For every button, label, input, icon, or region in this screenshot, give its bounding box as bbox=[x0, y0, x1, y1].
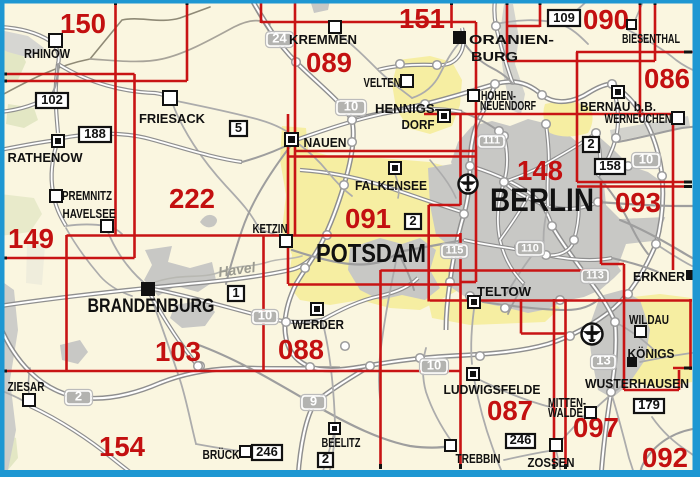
svg-text:WERNEUCHEN: WERNEUCHEN bbox=[605, 111, 672, 126]
svg-text:ERKNER: ERKNER bbox=[633, 269, 686, 284]
svg-text:149: 149 bbox=[8, 223, 54, 254]
svg-text:246: 246 bbox=[510, 432, 532, 447]
svg-text:10: 10 bbox=[639, 152, 653, 167]
svg-text:HENNIGS-: HENNIGS- bbox=[375, 101, 439, 116]
svg-text:088: 088 bbox=[278, 334, 324, 365]
svg-text:BRANDENBURG: BRANDENBURG bbox=[88, 296, 215, 317]
svg-text:154: 154 bbox=[99, 431, 145, 462]
svg-text:2: 2 bbox=[587, 136, 594, 151]
svg-text:150: 150 bbox=[60, 8, 106, 39]
svg-text:110: 110 bbox=[521, 243, 539, 255]
svg-text:9: 9 bbox=[310, 394, 317, 409]
svg-text:BRÜCK: BRÜCK bbox=[203, 447, 240, 462]
svg-text:WERDER: WERDER bbox=[292, 317, 345, 332]
svg-text:086: 086 bbox=[644, 63, 690, 94]
svg-text:246: 246 bbox=[256, 444, 278, 459]
svg-text:092: 092 bbox=[642, 442, 688, 473]
svg-text:102: 102 bbox=[41, 92, 63, 107]
svg-text:WALDE: WALDE bbox=[548, 405, 583, 420]
svg-text:LUDWIGSFELDE: LUDWIGSFELDE bbox=[444, 382, 541, 397]
svg-text:HAVELSEE: HAVELSEE bbox=[63, 206, 116, 221]
svg-text:DORF: DORF bbox=[402, 117, 435, 132]
svg-text:179: 179 bbox=[638, 397, 660, 412]
svg-text:111: 111 bbox=[483, 135, 500, 147]
svg-text:TELTOW: TELTOW bbox=[477, 284, 532, 299]
svg-text:087: 087 bbox=[487, 395, 533, 426]
svg-text:103: 103 bbox=[155, 336, 201, 367]
svg-text:BERLIN: BERLIN bbox=[490, 182, 594, 218]
svg-text:FRIESACK: FRIESACK bbox=[139, 111, 206, 126]
svg-text:ZIESAR: ZIESAR bbox=[8, 379, 45, 394]
svg-text:091: 091 bbox=[345, 203, 391, 234]
svg-text:10: 10 bbox=[427, 358, 441, 373]
svg-text:PREMNITZ: PREMNITZ bbox=[62, 188, 112, 203]
svg-text:ZOSSEN: ZOSSEN bbox=[528, 455, 575, 470]
svg-text:RHINOW: RHINOW bbox=[24, 46, 71, 61]
svg-text:093: 093 bbox=[615, 187, 661, 218]
svg-text:FALKENSEE: FALKENSEE bbox=[355, 178, 427, 193]
svg-text:10: 10 bbox=[258, 308, 272, 323]
svg-text:BIESENTHAL: BIESENTHAL bbox=[622, 31, 680, 46]
svg-text:222: 222 bbox=[169, 183, 215, 214]
svg-text:2: 2 bbox=[409, 213, 416, 228]
svg-text:113: 113 bbox=[586, 270, 604, 282]
svg-text:NAUEN: NAUEN bbox=[304, 135, 347, 150]
svg-text:115: 115 bbox=[446, 245, 464, 257]
svg-text:2: 2 bbox=[75, 389, 82, 404]
svg-text:VELTEN: VELTEN bbox=[364, 75, 401, 90]
svg-text:10: 10 bbox=[344, 99, 358, 114]
svg-text:KETZIN: KETZIN bbox=[253, 221, 288, 236]
svg-text:089: 089 bbox=[306, 47, 352, 78]
svg-text:13: 13 bbox=[596, 353, 610, 368]
svg-text:TREBBIN: TREBBIN bbox=[456, 451, 501, 466]
svg-text:5: 5 bbox=[235, 120, 242, 135]
svg-text:BURG: BURG bbox=[471, 49, 518, 64]
svg-text:24: 24 bbox=[272, 31, 287, 46]
svg-text:1: 1 bbox=[232, 285, 239, 300]
svg-text:109: 109 bbox=[553, 10, 575, 25]
svg-text:ORANIEN-: ORANIEN- bbox=[469, 32, 554, 47]
svg-text:BEELITZ: BEELITZ bbox=[322, 435, 361, 450]
svg-text:POTSDAM: POTSDAM bbox=[316, 238, 426, 268]
svg-text:2: 2 bbox=[322, 451, 329, 466]
svg-text:151: 151 bbox=[399, 3, 445, 34]
svg-text:RATHENOW: RATHENOW bbox=[8, 150, 84, 165]
svg-text:WUSTERHAUSEN: WUSTERHAUSEN bbox=[585, 376, 689, 391]
svg-text:KREMMEN: KREMMEN bbox=[289, 32, 357, 47]
svg-text:KÖNIGS: KÖNIGS bbox=[628, 346, 675, 361]
svg-text:WILDAU: WILDAU bbox=[629, 312, 669, 327]
svg-text:188: 188 bbox=[84, 126, 106, 141]
svg-text:158: 158 bbox=[599, 158, 621, 173]
svg-text:NEUENDORF: NEUENDORF bbox=[480, 98, 536, 113]
